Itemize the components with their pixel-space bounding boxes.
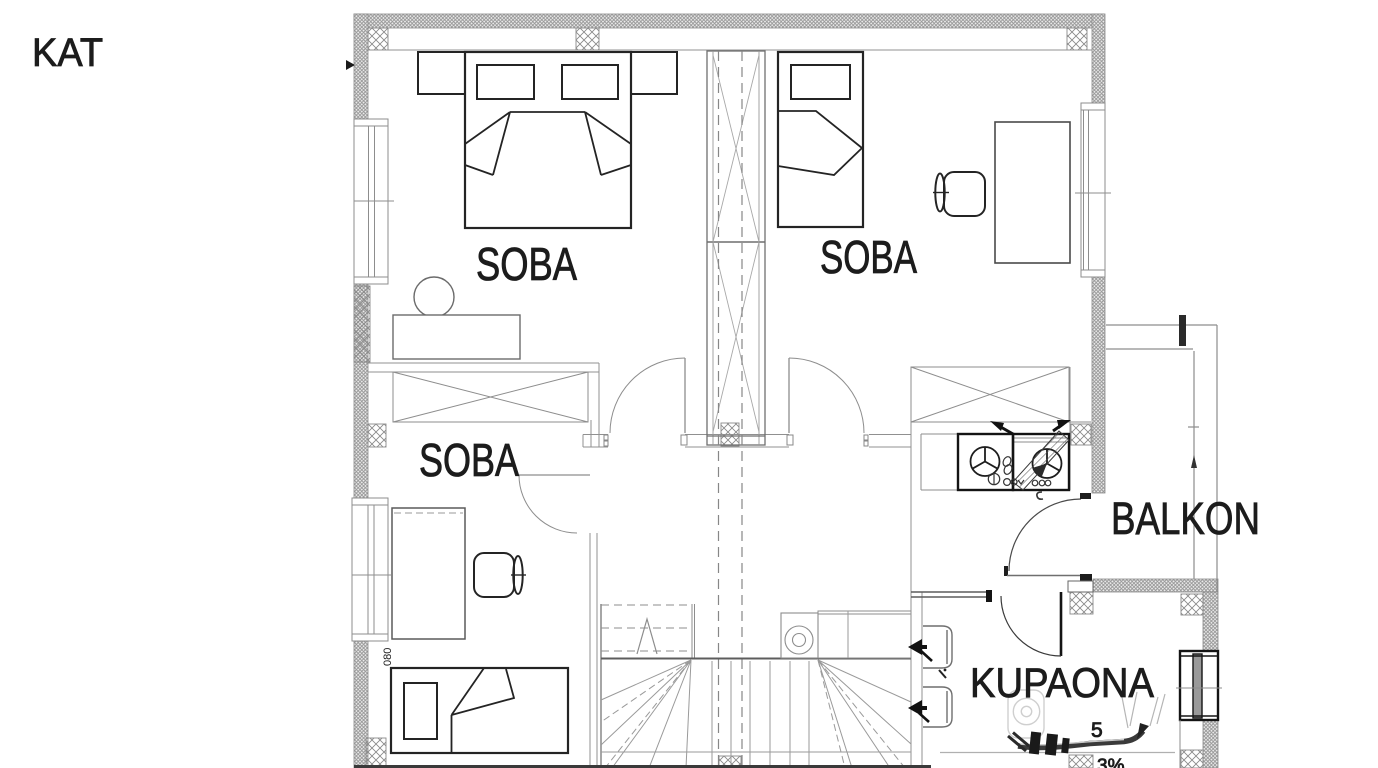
svg-text:BALKON: BALKON xyxy=(1111,493,1260,544)
svg-text:080: 080 xyxy=(382,648,394,666)
svg-text:3%: 3% xyxy=(1097,756,1125,768)
svg-text:5: 5 xyxy=(1091,719,1103,742)
svg-text:SOBA: SOBA xyxy=(820,231,917,283)
svg-text:SOBA: SOBA xyxy=(419,434,519,486)
svg-text:SOBA: SOBA xyxy=(476,238,577,290)
svg-text:KAT: KAT xyxy=(32,31,103,75)
svg-text:KUPAONA: KUPAONA xyxy=(970,659,1154,706)
